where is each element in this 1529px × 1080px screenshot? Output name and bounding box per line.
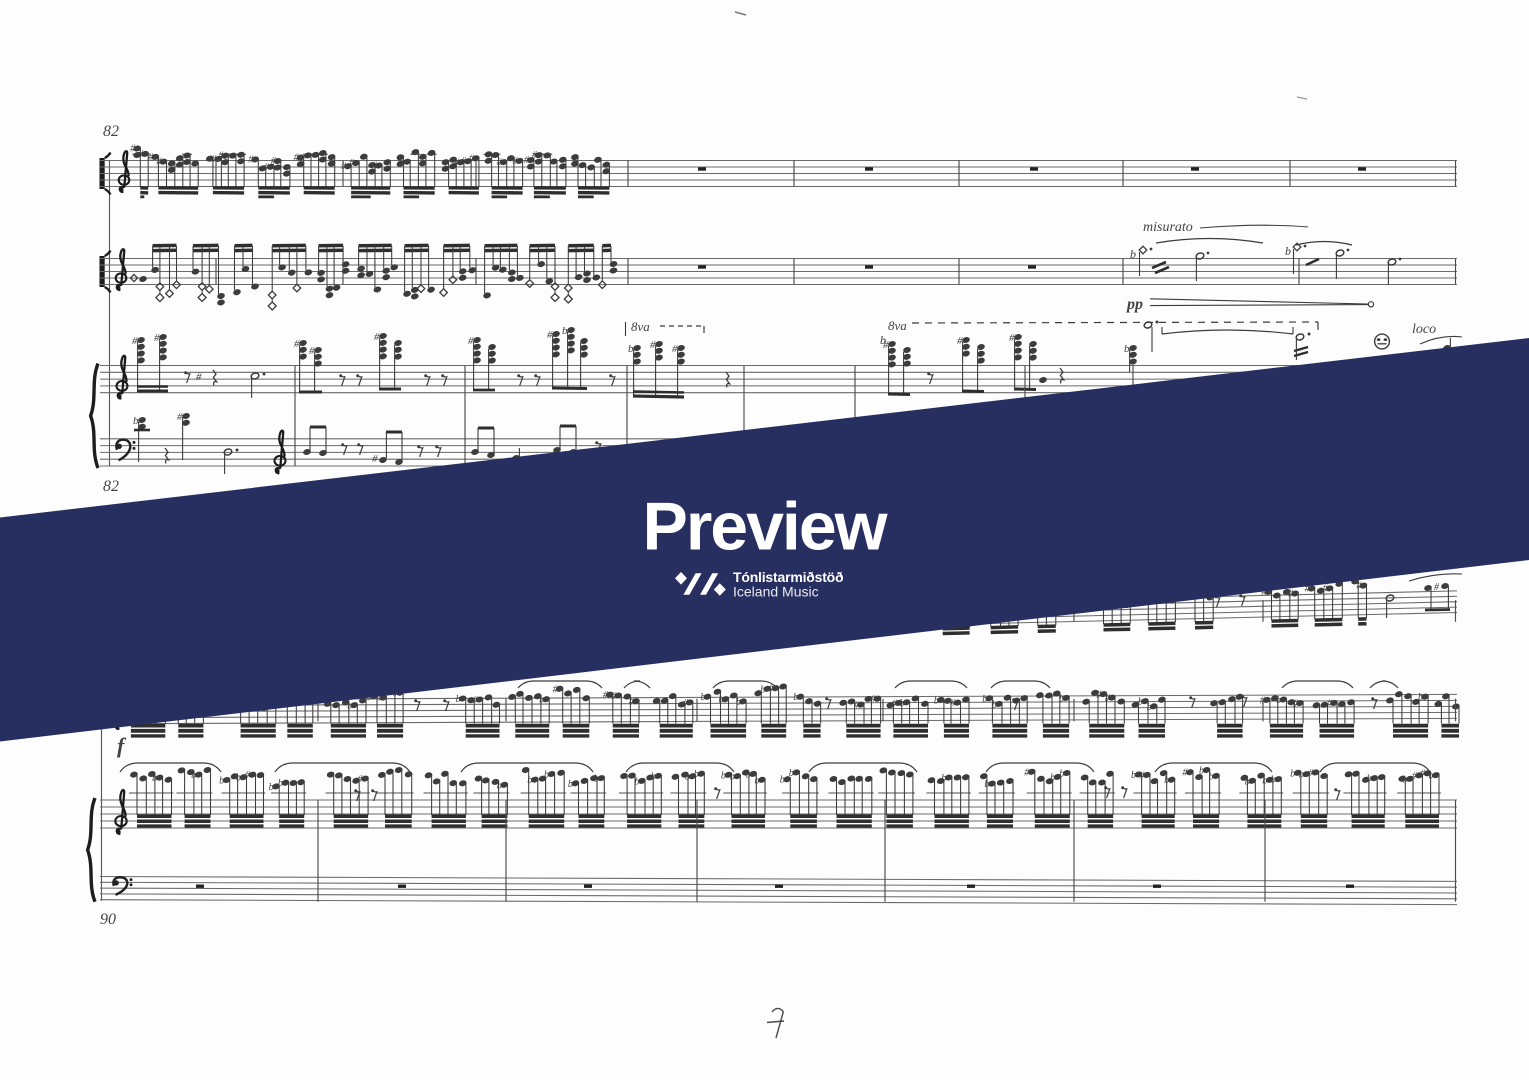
svg-text:8va: 8va [631, 319, 650, 334]
svg-text:#: # [372, 453, 378, 465]
svg-text:b: b [527, 775, 532, 786]
svg-text:b: b [1059, 693, 1064, 704]
svg-text:b: b [941, 773, 946, 784]
svg-text:b: b [219, 776, 224, 787]
svg-text:b: b [497, 780, 502, 791]
svg-text:b: b [1276, 695, 1281, 706]
svg-text:b: b [1131, 770, 1136, 781]
svg-text:b: b [880, 333, 886, 347]
svg-text:b: b [900, 698, 905, 709]
svg-text:b: b [760, 684, 765, 695]
svg-text:8va: 8va [888, 318, 907, 333]
svg-text:b: b [1402, 774, 1407, 785]
svg-text:b: b [568, 779, 573, 790]
svg-text:b: b [721, 770, 726, 781]
svg-text:b: b [634, 776, 639, 787]
svg-text:b: b [236, 773, 241, 784]
svg-text:b: b [1262, 775, 1267, 786]
svg-text:b: b [152, 773, 157, 784]
svg-text:Preview: Preview [642, 489, 888, 565]
svg-text:b: b [746, 769, 751, 780]
svg-text:pp: pp [1125, 296, 1143, 313]
svg-text:b: b [1285, 244, 1291, 258]
svg-text:b: b [544, 770, 549, 781]
svg-text:b: b [1290, 768, 1295, 779]
svg-text:misurato: misurato [1143, 220, 1193, 235]
svg-text:b: b [651, 771, 656, 782]
svg-text:b: b [793, 692, 798, 703]
svg-text:b: b [754, 775, 759, 786]
svg-text:b: b [1209, 771, 1214, 782]
svg-text:b: b [934, 695, 939, 706]
svg-text:b: b [1428, 771, 1433, 782]
svg-text:b: b [789, 768, 794, 779]
svg-text:b: b [685, 772, 690, 783]
svg-text:b: b [1059, 769, 1064, 780]
svg-text:b: b [736, 697, 741, 708]
svg-text:b: b [780, 775, 785, 786]
svg-text:b: b [992, 699, 997, 710]
svg-text:Iceland Music: Iceland Music [733, 584, 819, 600]
svg-text:b: b [1147, 702, 1152, 713]
svg-text:b: b [730, 772, 735, 783]
svg-text:90: 90 [100, 911, 116, 928]
svg-text:b: b [1271, 775, 1276, 786]
svg-text:loco: loco [1412, 322, 1436, 337]
svg-text:b: b [1130, 247, 1136, 261]
svg-text:82: 82 [103, 478, 119, 495]
svg-text:b: b [539, 695, 544, 706]
svg-text:b: b [718, 695, 723, 706]
svg-text:b: b [1050, 772, 1055, 783]
svg-text:82: 82 [103, 123, 119, 140]
svg-text:b: b [1418, 692, 1423, 703]
svg-text:b: b [700, 692, 705, 703]
svg-text:b: b [984, 779, 989, 790]
svg-text:b: b [1245, 776, 1250, 787]
svg-text:b: b [278, 778, 283, 789]
svg-text:b: b [347, 701, 352, 712]
svg-text:b: b [594, 774, 599, 785]
svg-text:b: b [1367, 774, 1372, 785]
svg-text:b: b [1164, 775, 1169, 786]
svg-text:b: b [456, 694, 461, 705]
svg-text:f: f [117, 733, 127, 758]
svg-text:b: b [694, 769, 699, 780]
svg-text:b: b [1299, 770, 1304, 781]
svg-text:b: b [982, 694, 987, 705]
svg-text:#: # [196, 371, 202, 383]
svg-text:b: b [1199, 766, 1204, 777]
svg-text:b: b [191, 770, 196, 781]
svg-text:b: b [269, 782, 274, 793]
svg-text:b: b [1138, 697, 1143, 708]
